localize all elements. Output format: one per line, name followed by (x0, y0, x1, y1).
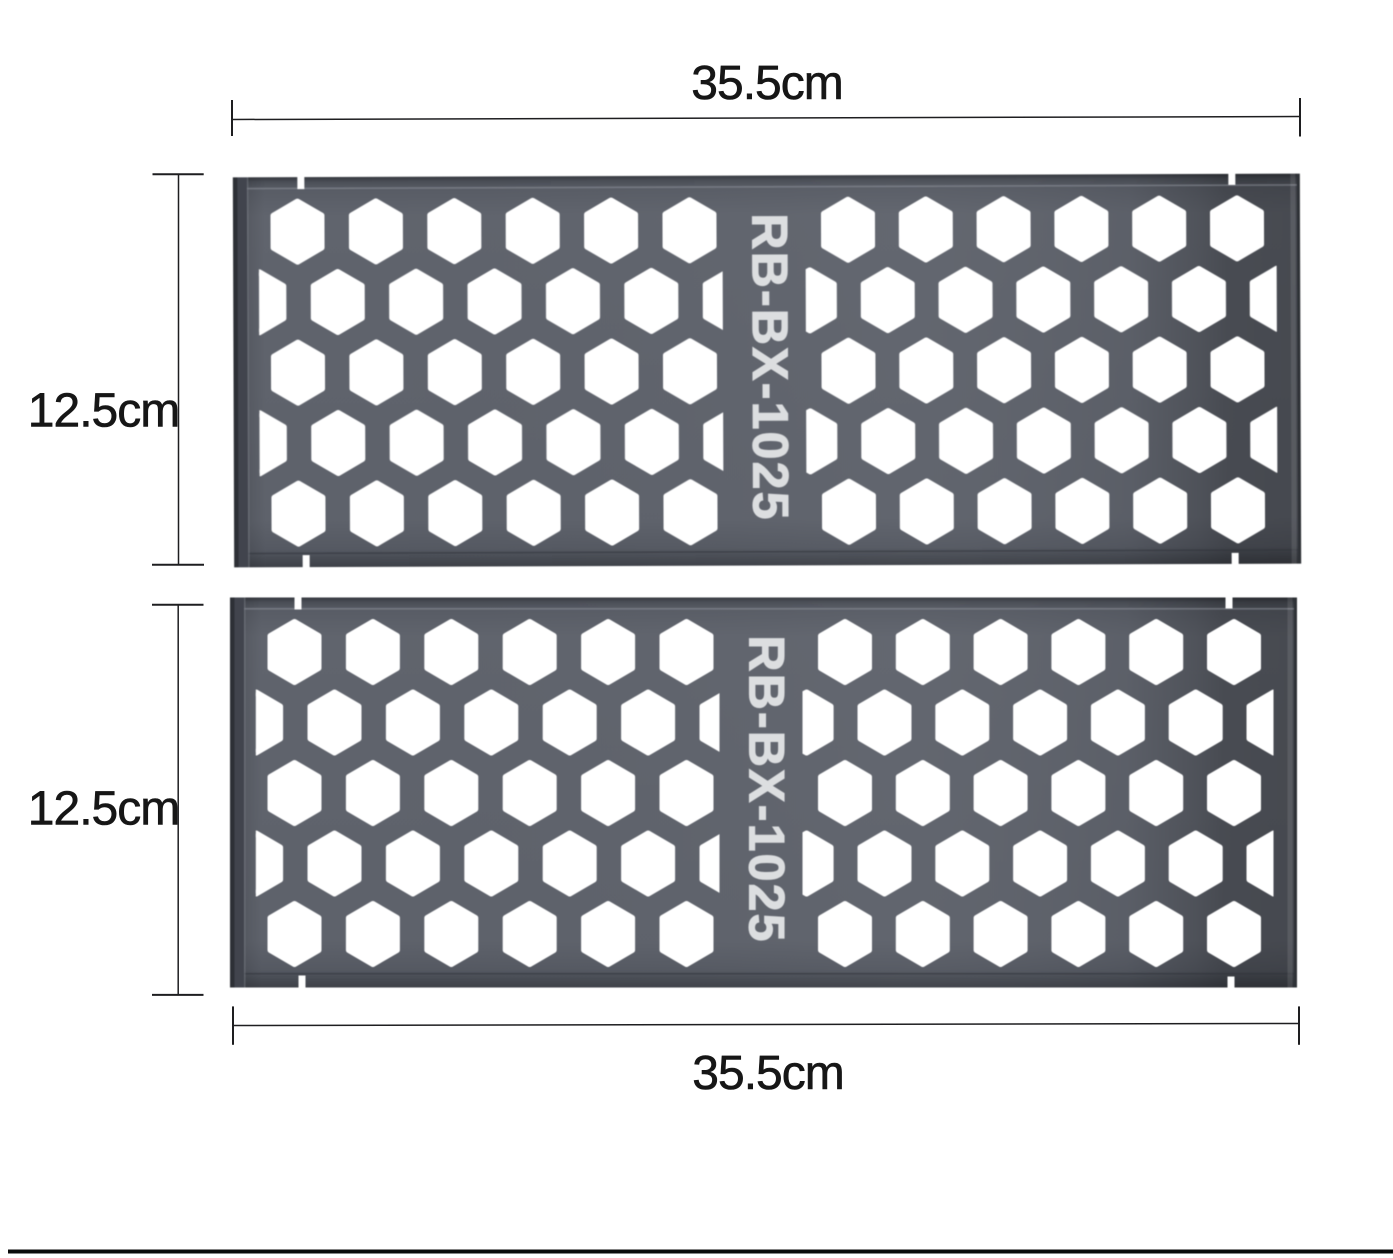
svg-text:35.5cm: 35.5cm (692, 1047, 843, 1100)
svg-text:12.5cm: 12.5cm (28, 385, 179, 438)
svg-text:35.5cm: 35.5cm (691, 57, 842, 110)
svg-text:12.5cm: 12.5cm (28, 782, 179, 835)
